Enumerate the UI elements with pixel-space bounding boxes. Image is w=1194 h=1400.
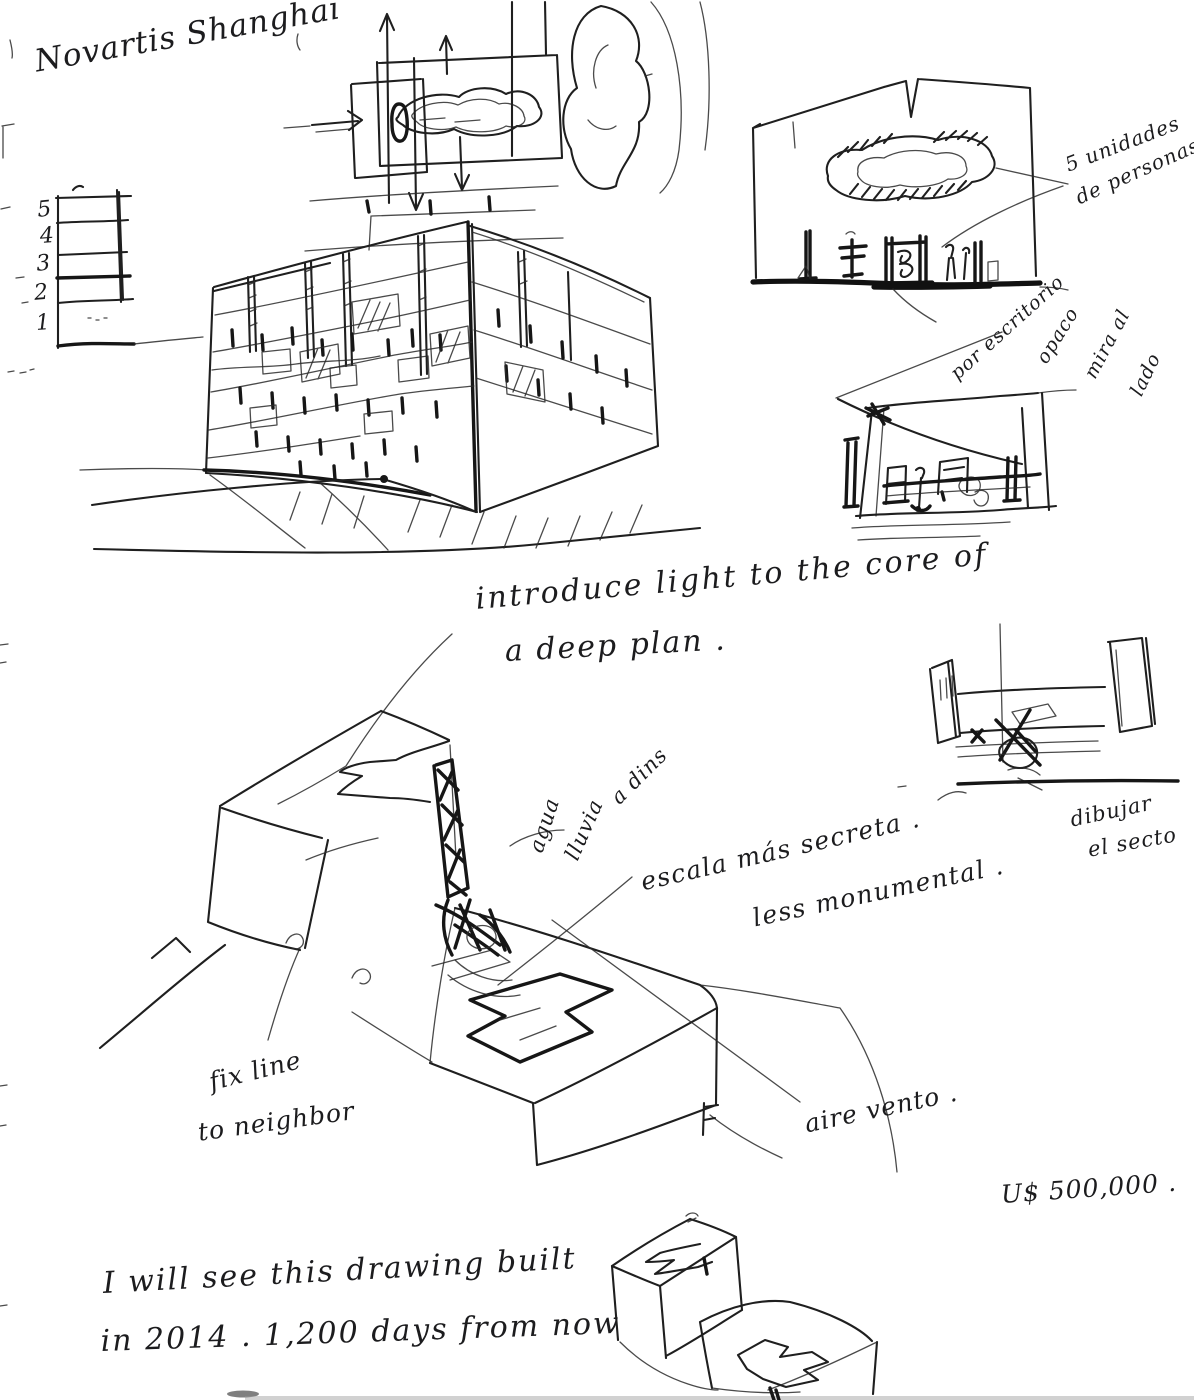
section-sketch bbox=[753, 79, 1068, 322]
floor-label-2: 2 bbox=[33, 280, 50, 307]
floor-label-3: 3 bbox=[35, 250, 53, 277]
paired-blocks-sketch bbox=[898, 624, 1178, 800]
facade-perspective-sketch bbox=[8, 222, 700, 553]
floor-label-4: 4 bbox=[39, 223, 56, 250]
sketchbook-page: Novartis Shanghai 5 4 3 2 1 5 unidades d… bbox=[0, 0, 1194, 1400]
plan-diagram-sketch bbox=[284, 2, 709, 251]
floor-label-1: 1 bbox=[35, 310, 52, 337]
cube-slab-sketch bbox=[612, 1213, 877, 1400]
floor-label-5: 5 bbox=[36, 196, 54, 223]
